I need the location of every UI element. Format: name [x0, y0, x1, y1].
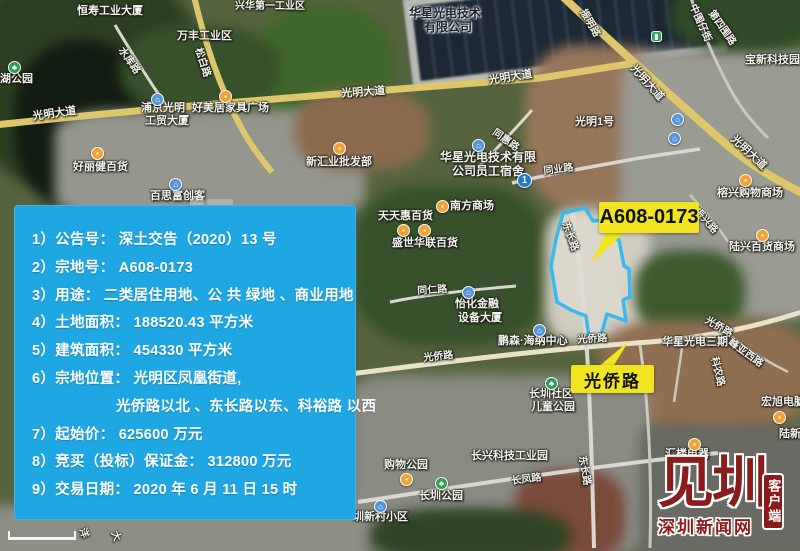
panel-line: 光侨路以北 、东长路以东、科裕路 以西	[32, 394, 344, 422]
panel-line: 7）起始价： 625600 万元	[32, 422, 344, 450]
land-auction-info-panel: 1）公告号： 深土交告（2020）13 号2）宗地号： A608-01733）用…	[14, 205, 356, 520]
parcel-id-callout: A608-0173	[599, 202, 699, 233]
panel-line: 1）公告号： 深土交告（2020）13 号	[32, 227, 344, 255]
road-callout-tail	[597, 341, 629, 368]
panel-line: 9）交易日期： 2020 年 6 月 11 日 15 时	[32, 477, 344, 505]
parcel-callout-tail	[591, 231, 626, 263]
panel-line: 8）竞买（投标）保证金： 312800 万元	[32, 449, 344, 477]
panel-line: 4）土地面积： 188520.43 平方米	[32, 310, 344, 338]
logo-client-badge: 客户端	[762, 473, 784, 530]
panel-line: 2）宗地号： A608-0173	[32, 255, 344, 283]
panel-line: 3）用途： 二类居住用地、公 共 绿地 、商业用地	[32, 283, 344, 311]
panel-line: 6）宗地位置： 光明区凤凰街道,	[32, 366, 344, 394]
news-map-graphic: 恒寿工业大厦兴华第一工业区万丰工业区水库路松白路湖公园光明大道浦京光明工贸大厦好…	[0, 0, 800, 551]
shenzhen-news-logo: 见圳 客户端 深圳新闻网	[658, 455, 798, 538]
road-name-callout: 光侨路	[571, 365, 654, 393]
panel-line: 5）建筑面积： 454330 平方米	[32, 338, 344, 366]
